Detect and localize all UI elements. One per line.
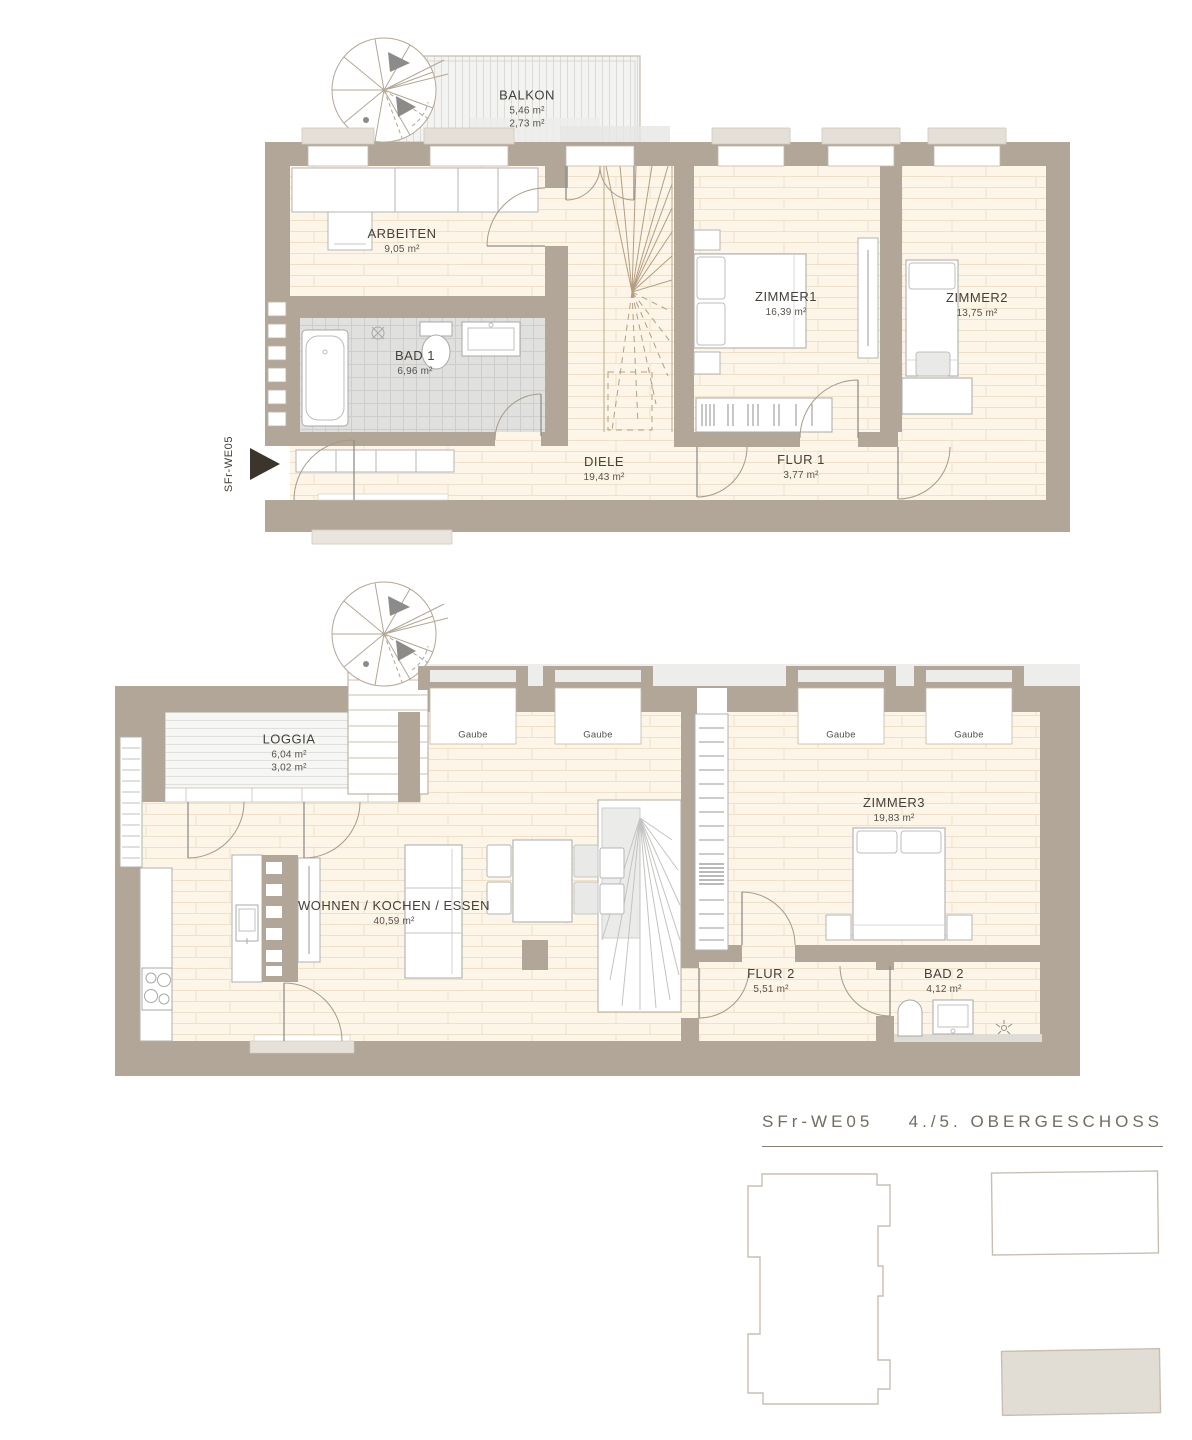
room-label-wohnen: WOHNEN / KOCHEN / ESSEN 40,59 m² xyxy=(298,898,490,928)
room-label-zimmer3: ZIMMER3 19,83 m² xyxy=(863,795,925,825)
room-label-diele: DIELE 19,43 m² xyxy=(583,454,624,484)
room-label-flur1: FLUR 1 3,77 m² xyxy=(777,452,825,482)
gaube-label-2: Gaube xyxy=(583,730,613,741)
sink-bath1 xyxy=(462,322,520,356)
radiator xyxy=(120,737,142,867)
title-unit: SFr-WE05 xyxy=(762,1112,873,1132)
room-label-zimmer1: ZIMMER1 16,39 m² xyxy=(755,289,817,319)
entrance-unit-label: SFr-WE05 xyxy=(223,436,235,492)
room-label-balkon: BALKON 5,46 m² 2,73 m² xyxy=(499,88,555,131)
room-label-bad2: BAD 2 4,12 m² xyxy=(924,966,964,996)
gaube-label-4: Gaube xyxy=(954,730,984,741)
room-label-flur2: FLUR 2 5,51 m² xyxy=(747,966,795,996)
floor-plan-drawing xyxy=(0,0,1192,1440)
gaube-label-1: Gaube xyxy=(458,730,488,741)
gaube-label-3: Gaube xyxy=(826,730,856,741)
column xyxy=(522,940,548,970)
lower-floor-plan xyxy=(115,582,1080,1076)
key-plan xyxy=(748,1171,1161,1415)
diele-cabinet xyxy=(296,450,454,472)
floor-plan-sheet: BALKON 5,46 m² 2,73 m² ARBEITEN 9,05 m² … xyxy=(0,0,1192,1440)
wardrobe-zimmer3 xyxy=(695,688,728,950)
keyplan-building-outline xyxy=(748,1174,890,1404)
keyplan-building-2 xyxy=(992,1171,1159,1255)
toilet-bad2 xyxy=(898,1000,922,1036)
lower-window xyxy=(254,1035,350,1041)
entrance-arrow-icon xyxy=(250,448,280,480)
lower-window-sill xyxy=(250,1041,354,1053)
kitchen-counter xyxy=(140,868,172,1041)
title-block: SFr-WE05 4./5. OBERGESCHOSS xyxy=(762,1112,1163,1132)
keyplan-building-highlighted xyxy=(1001,1349,1160,1416)
room-label-arbeiten: ARBEITEN 9,05 m² xyxy=(367,226,436,256)
room-label-zimmer2: ZIMMER2 13,75 m² xyxy=(946,290,1008,320)
room-label-loggia: LOGGIA 6,04 m² 3,02 m² xyxy=(263,732,316,775)
title-floor: 4./5. OBERGESCHOSS xyxy=(909,1112,1163,1132)
room-label-bad1: BAD 1 6,96 m² xyxy=(395,348,435,378)
tv-panel-zimmer1 xyxy=(858,238,878,358)
dining-table xyxy=(513,840,572,922)
bathtub xyxy=(302,330,348,426)
title-underline xyxy=(762,1146,1163,1147)
